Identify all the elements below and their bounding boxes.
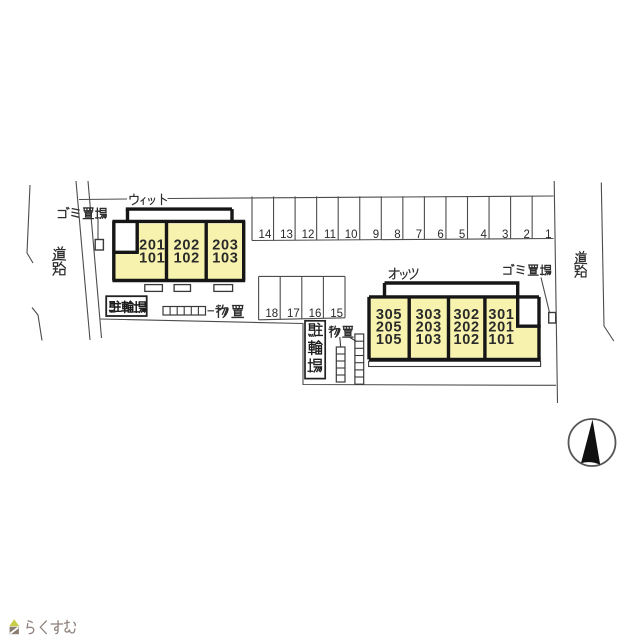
svg-text:15: 15 — [330, 308, 343, 320]
svg-text:13: 13 — [280, 229, 293, 241]
svg-text:102: 102 — [453, 332, 479, 348]
svg-text:11: 11 — [324, 229, 336, 241]
svg-text:101: 101 — [488, 332, 514, 348]
svg-text:103: 103 — [416, 332, 442, 348]
svg-text:16: 16 — [309, 308, 322, 320]
svg-text:14: 14 — [259, 229, 272, 241]
svg-text:2: 2 — [524, 229, 530, 241]
svg-text:3: 3 — [502, 229, 508, 241]
svg-text:17: 17 — [287, 308, 300, 320]
svg-text:7: 7 — [416, 229, 422, 241]
svg-text:10: 10 — [345, 229, 358, 241]
svg-text:8: 8 — [394, 229, 400, 241]
svg-text:103: 103 — [212, 250, 238, 266]
svg-text:101: 101 — [139, 250, 165, 266]
svg-text:102: 102 — [174, 250, 200, 266]
svg-text:4: 4 — [480, 229, 487, 241]
svg-text:18: 18 — [265, 308, 278, 320]
svg-text:1: 1 — [545, 229, 551, 241]
svg-text:9: 9 — [373, 229, 379, 241]
svg-text:6: 6 — [437, 229, 443, 241]
svg-text:105: 105 — [376, 332, 402, 348]
svg-text:12: 12 — [302, 229, 315, 241]
svg-text:5: 5 — [459, 229, 465, 241]
